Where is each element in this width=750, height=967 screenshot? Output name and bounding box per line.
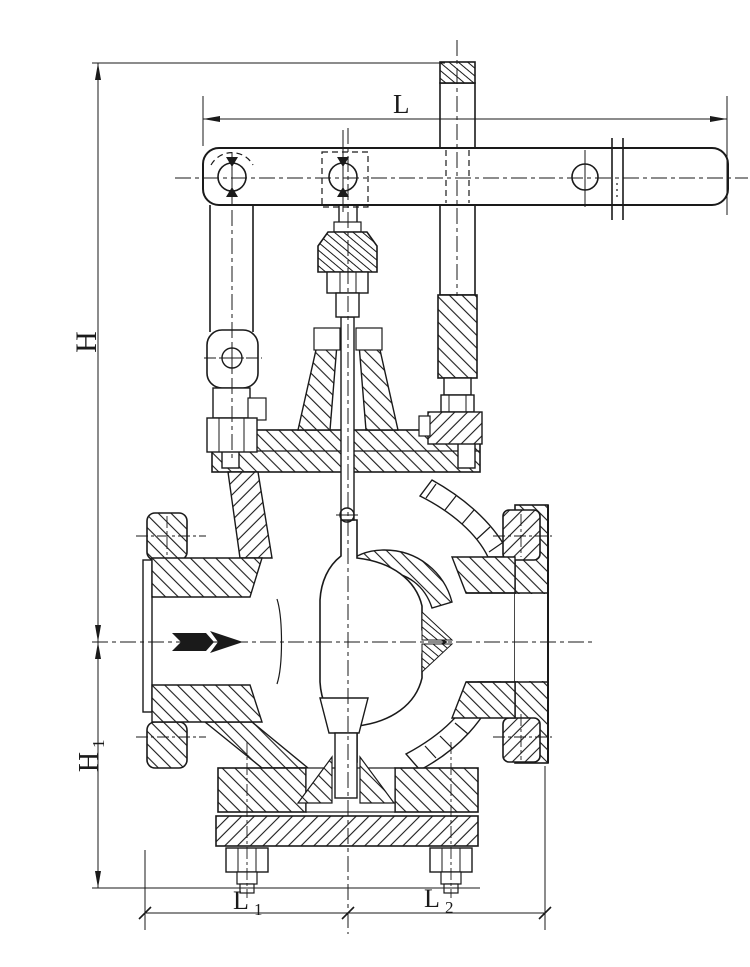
inlet-flange-face-plate [143, 560, 152, 712]
inlet-pipe-lower-wall [152, 685, 262, 722]
dimension-label-L2-sub: 2 [445, 898, 454, 917]
body-upper-right-wall [420, 480, 510, 557]
outlet-flange-lower-lug [503, 718, 540, 762]
inlet-pipe-upper-wall [152, 558, 262, 597]
outlet-pipe-upper-wall [452, 557, 515, 593]
arrowhead-left [203, 116, 220, 122]
arrowhead-up [95, 63, 101, 80]
seat-ring-upper [422, 612, 452, 640]
rod-bracket [428, 412, 482, 444]
link-bracket-ear [248, 398, 266, 420]
weight-block [438, 295, 477, 378]
dimension-label-H1-sub: 1 [89, 740, 108, 749]
dimension-label-L: L [393, 89, 410, 119]
dimension-label-H: H [70, 331, 103, 353]
inlet-flange-lower-lug [147, 722, 187, 768]
rod-coupler-lower [441, 395, 474, 412]
outlet-pipe-lower-wall [452, 682, 515, 718]
technical-drawing-canvas: H H 1 L L 1 L 2 [0, 0, 750, 967]
gland-nut-left [314, 328, 340, 350]
dimension-label-H1: H [74, 752, 105, 772]
rod-bracket-ear [419, 416, 430, 436]
arrowhead-down [95, 625, 101, 642]
lower-stem [335, 733, 357, 798]
dimension-label-L1: L [233, 886, 249, 915]
seat-ring-lower [422, 644, 452, 672]
link-rod-assembly [207, 205, 266, 452]
dimension-label-L1-sub: 1 [254, 900, 263, 919]
bottom-cover-plate [216, 816, 478, 846]
bottom-flange-right [395, 768, 478, 812]
arrowhead-down [95, 871, 101, 888]
bottom-flange-left [218, 768, 306, 812]
rod-coupler-upper [444, 378, 471, 395]
arrowhead-up [95, 642, 101, 659]
dimension-label-L2: L [424, 884, 440, 913]
lever-bar [203, 148, 728, 205]
lower-guide-boss [320, 698, 368, 733]
valve-sectional-drawing: H H 1 L L 1 L 2 [0, 0, 750, 967]
gland-nut-right [356, 328, 382, 350]
outlet-bore-opening [515, 594, 548, 681]
outlet-flange-upper-lug [503, 510, 540, 560]
body-lower-left-wall [205, 722, 308, 768]
body-left-shoulder [228, 472, 272, 558]
arrowhead-right [710, 116, 727, 122]
